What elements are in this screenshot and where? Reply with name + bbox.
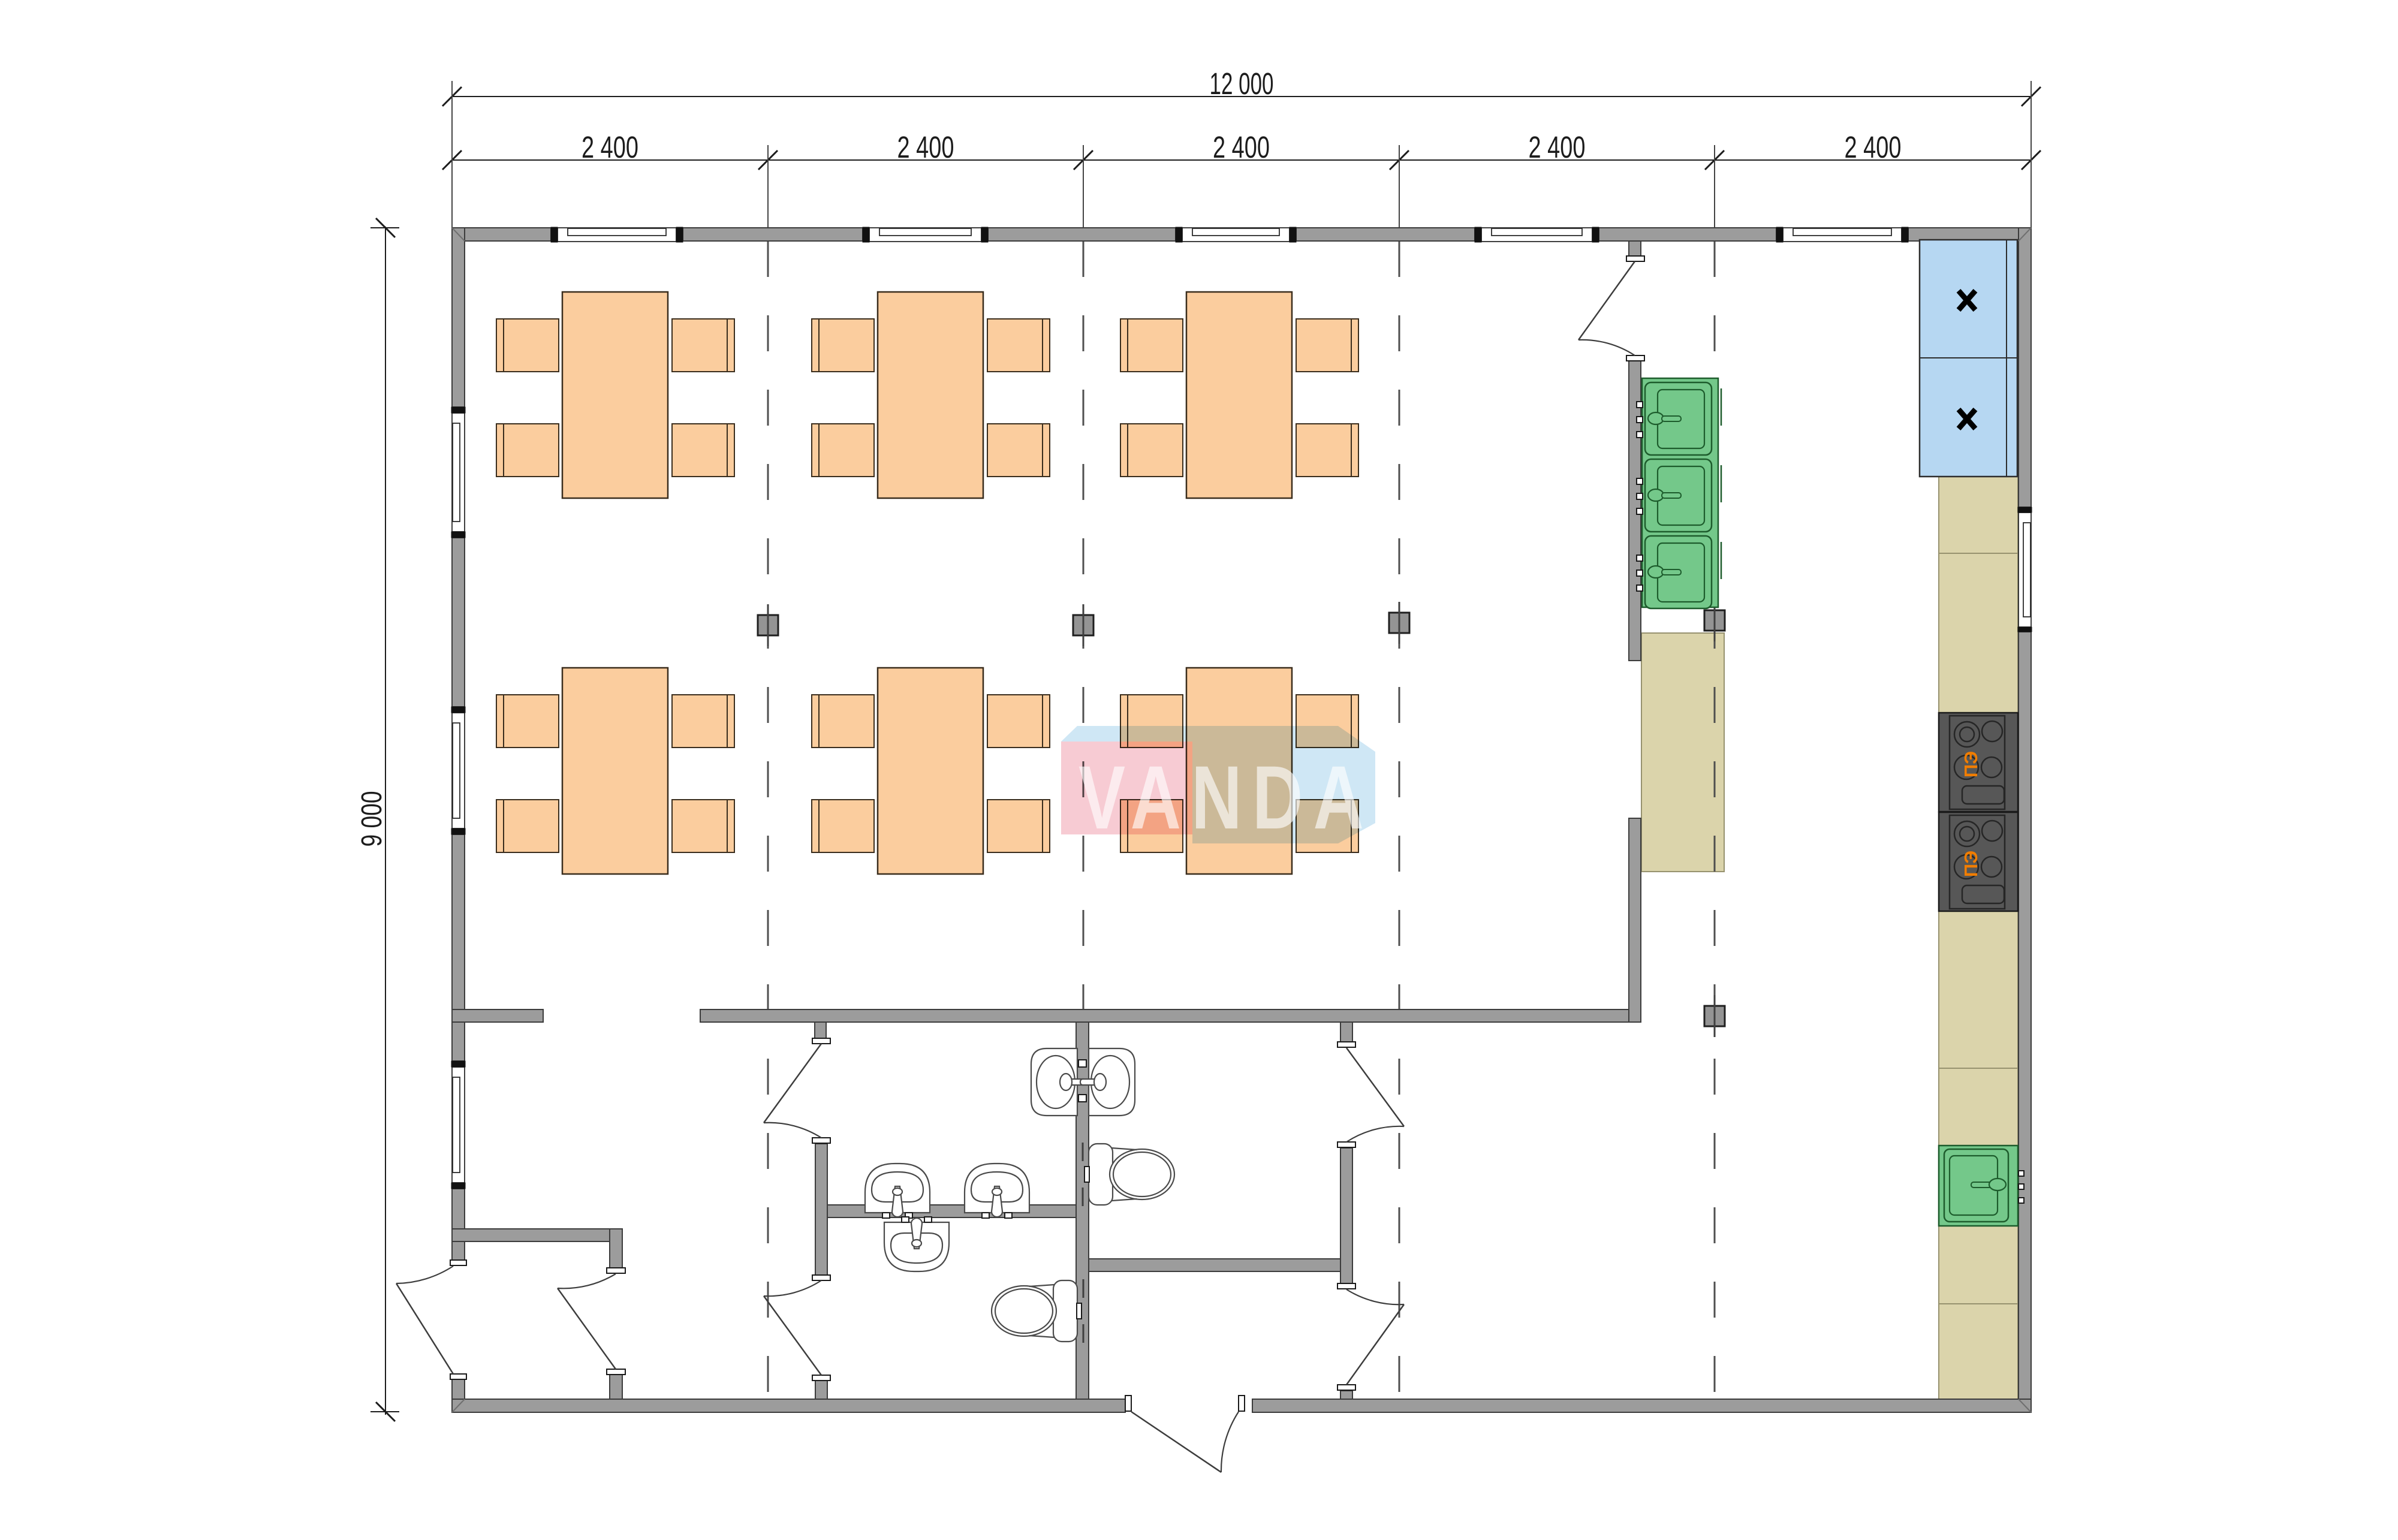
svg-text:ПЭ: ПЭ <box>1960 851 1981 877</box>
svg-text:2 400: 2 400 <box>582 130 638 164</box>
svg-text:2 400: 2 400 <box>897 130 954 164</box>
svg-text:2 400: 2 400 <box>1845 130 1902 164</box>
svg-text:12 000: 12 000 <box>1210 67 1274 101</box>
svg-text:2 400: 2 400 <box>1213 130 1270 164</box>
svg-text:ПЭ: ПЭ <box>1960 751 1981 777</box>
svg-text:9 000: 9 000 <box>356 791 388 847</box>
svg-text:2 400: 2 400 <box>1529 130 1586 164</box>
svg-text:VANDA: VANDA <box>1079 747 1374 848</box>
